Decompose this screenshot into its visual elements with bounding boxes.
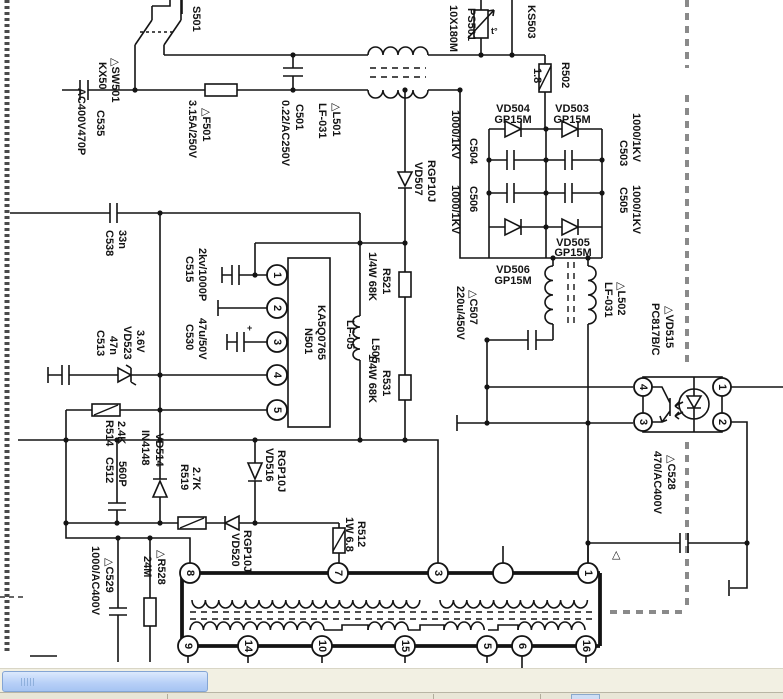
label-vd514-value: IN4148 <box>139 430 151 465</box>
ic-pin-5: 5 <box>271 407 283 413</box>
vd516-diode <box>248 463 262 481</box>
secondary-winding-1 <box>190 622 324 630</box>
c538-capacitor <box>110 203 117 223</box>
label-vd503-value: GP15M <box>553 114 590 126</box>
label-r528-value: 24M <box>141 556 153 577</box>
l502-winding-left <box>545 266 553 324</box>
xfmr-pin-9: 9 <box>182 643 194 649</box>
label-r521-value: 1/4W 68K <box>366 252 378 301</box>
status-segment <box>571 694 600 699</box>
ic-pin-2: 2 <box>271 305 283 311</box>
label-c513-value: 47n <box>107 336 119 355</box>
l501-core <box>370 68 426 77</box>
secondary-winding-2 <box>368 622 408 630</box>
c529-capacitor <box>109 608 127 615</box>
label-l502-name: △L502 <box>615 282 627 316</box>
label-r514-name: R514 <box>103 420 115 447</box>
xfmr-pin-16: 16 <box>580 640 592 652</box>
label-c530-value: 47u/50V <box>196 318 208 360</box>
transformer <box>182 573 600 646</box>
r528-resistor <box>144 598 156 626</box>
label-c538-name: C538 <box>103 230 115 256</box>
label-c528-name: △C528 <box>665 455 677 490</box>
label-ks503: KS503 <box>525 5 537 39</box>
vd514-diode <box>153 479 167 497</box>
schematic-canvas: S501 △SW501 KX50 C535 AC400V470P △F501 3… <box>0 0 783 668</box>
label-vd507-value: RGP10J <box>425 160 437 202</box>
c507-capacitor <box>528 330 536 350</box>
label-c501-name: C501 <box>293 104 305 130</box>
label-r514-value: 2.4K <box>115 421 127 444</box>
warning-triangle-mark: △ <box>612 549 621 561</box>
schematic-page: S501 △SW501 KX50 C535 AC400V470P △F501 3… <box>0 0 783 699</box>
label-l505-value: LF-05 <box>344 320 356 349</box>
label-c501-value: 0.22/AC250V <box>279 100 291 167</box>
label-r531-name: R531 <box>380 370 392 396</box>
label-c530-name: C530 <box>183 324 195 350</box>
label-r531-value: 1/4W 68K <box>366 354 378 403</box>
label-sw501-name: △SW501 <box>109 58 121 103</box>
label-c512-value: 560P <box>116 461 128 487</box>
opto-pin-3: 3 <box>637 419 649 425</box>
ic-pin-1: 1 <box>271 272 283 278</box>
label-f501-value: 3.15A/250V <box>186 100 198 159</box>
label-r512-value: 1W 6.8 <box>343 517 355 552</box>
c501-capacitor <box>283 68 303 76</box>
label-ps501-value: 10X180M <box>447 5 459 52</box>
label-c507-name: △C507 <box>467 290 479 325</box>
vd507-diode <box>398 172 412 188</box>
label-c535-name: C535 <box>94 110 106 136</box>
winding-links <box>324 625 518 630</box>
label-r512-name: R512 <box>355 521 367 547</box>
opto-pin-4: 4 <box>637 384 649 391</box>
xfmr-pin-10: 10 <box>316 640 328 652</box>
label-vd515-value: PC817B/C <box>649 303 661 356</box>
l502-winding-right <box>588 266 596 324</box>
label-sw501-value: KX50 <box>96 62 108 90</box>
l502-core <box>568 262 574 328</box>
label-vd506-value: GP15M <box>494 275 531 287</box>
xfmr-pin-1: 1 <box>582 570 594 576</box>
label-c515-name: C515 <box>183 256 195 282</box>
primary-winding-right <box>440 600 587 608</box>
l501-winding-bottom <box>368 90 428 98</box>
label-n501-value: KA5Q0765 <box>315 305 327 360</box>
f501-fuse <box>205 84 237 96</box>
label-c513-name: C513 <box>94 330 106 356</box>
vd520-diode <box>225 516 239 530</box>
bridge-capacitors <box>507 150 572 203</box>
scrollbar-thumb[interactable] <box>2 671 208 692</box>
label-c503-value: 1000/1KV <box>630 113 642 163</box>
xfmr-pin-7: 7 <box>332 570 344 576</box>
opto-pin-2: 2 <box>716 419 728 425</box>
secondary-winding-3 <box>444 622 484 630</box>
c530-polarity-mark: + <box>247 323 252 333</box>
ic-pin-4: 4 <box>271 372 283 379</box>
label-vd514-name: VD514 <box>153 433 165 468</box>
vd505-diode <box>562 219 578 235</box>
label-vd505-value: GP15M <box>554 247 591 259</box>
xfmr-pin-5: 5 <box>481 643 493 649</box>
xfmr-pin-14: 14 <box>242 640 254 653</box>
label-c512-name: C512 <box>103 457 115 483</box>
label-vd515-name: △VD515 <box>663 306 675 348</box>
label-c529-value: 1000/AC400V <box>89 546 101 616</box>
label-vd520-name: VD520 <box>229 533 241 567</box>
label-vd504-value: GP15M <box>494 114 531 126</box>
label-c528-value: 470/AC400V <box>651 451 663 515</box>
label-vd520-value: RGP10J <box>241 530 253 572</box>
status-bar <box>0 692 783 699</box>
c515-capacitor <box>232 265 239 285</box>
label-n501-name: N501 <box>302 328 314 354</box>
status-separator <box>540 694 541 699</box>
label-l501-name: △L501 <box>330 103 342 137</box>
c513-capacitor <box>62 365 69 385</box>
label-vd516-value: RGP10J <box>275 450 287 492</box>
opto-pin-1: 1 <box>716 384 728 390</box>
r521-resistor <box>399 272 411 297</box>
label-f501-name: △F501 <box>200 108 212 142</box>
label-r519-name: R519 <box>178 464 190 490</box>
label-c515-value: 2kv/1000P <box>196 248 208 301</box>
xfmr-pin-8: 8 <box>184 570 196 576</box>
xfmr-pin-15: 15 <box>399 640 411 652</box>
secondary-winding-4 <box>518 622 585 630</box>
label-r502-name: R502 <box>559 62 571 88</box>
junction-dots <box>63 52 749 545</box>
label-r519-value: 2.7K <box>190 467 202 490</box>
label-c506-name: C506 <box>467 186 479 212</box>
l501-winding-top <box>368 47 428 55</box>
label-r521-name: R521 <box>380 268 392 294</box>
label-vd516-name: VD516 <box>263 448 275 482</box>
label-r528-name: △R528 <box>155 550 167 585</box>
component-symbols <box>62 10 722 626</box>
label-l501-value: LF-031 <box>316 103 328 138</box>
c512-capacitor <box>108 503 126 510</box>
label-c505-value: 1000/1KV <box>630 185 642 235</box>
label-vd523-name: VD523 <box>121 326 133 360</box>
label-c504-name: C504 <box>467 138 479 165</box>
label-l502-value: LF-031 <box>602 282 614 317</box>
horizontal-scrollbar[interactable] <box>0 668 783 692</box>
label-vd523-value: 3.6V <box>134 330 146 353</box>
label-s501: S501 <box>190 6 202 32</box>
xfmr-pin-3: 3 <box>432 570 444 576</box>
transformer-core <box>190 612 592 619</box>
status-separator <box>167 694 168 699</box>
labels: S501 △SW501 KX50 C535 AC400V470P △F501 3… <box>75 5 677 616</box>
r531-resistor <box>399 375 411 400</box>
ps501-thermal-mark: t° <box>491 26 498 36</box>
label-c535-value: AC400V470P <box>75 88 87 155</box>
label-c504-value: 1000/1KV <box>449 110 461 160</box>
label-c507-value: 220u/450V <box>454 286 466 340</box>
label-r502-value: 1.8 <box>531 68 543 83</box>
label-c506-value: 1000/1KV <box>449 185 461 235</box>
scrollbar-grip-icon <box>21 678 34 686</box>
label-c503-name: C503 <box>617 140 629 166</box>
xfmr-pin-6: 6 <box>516 643 528 649</box>
label-c505-name: C505 <box>617 187 629 213</box>
primary-winding-left <box>192 600 420 608</box>
label-ps501-name: PS501 <box>465 8 477 41</box>
label-c538-value: 33n <box>116 230 128 249</box>
c530-capacitor <box>237 332 244 352</box>
label-c529-name: △C529 <box>103 558 115 593</box>
status-separator <box>433 694 434 699</box>
vd506-diode <box>505 219 521 235</box>
label-vd507-name: VD507 <box>412 162 424 196</box>
ic-pin-3: 3 <box>271 339 283 345</box>
